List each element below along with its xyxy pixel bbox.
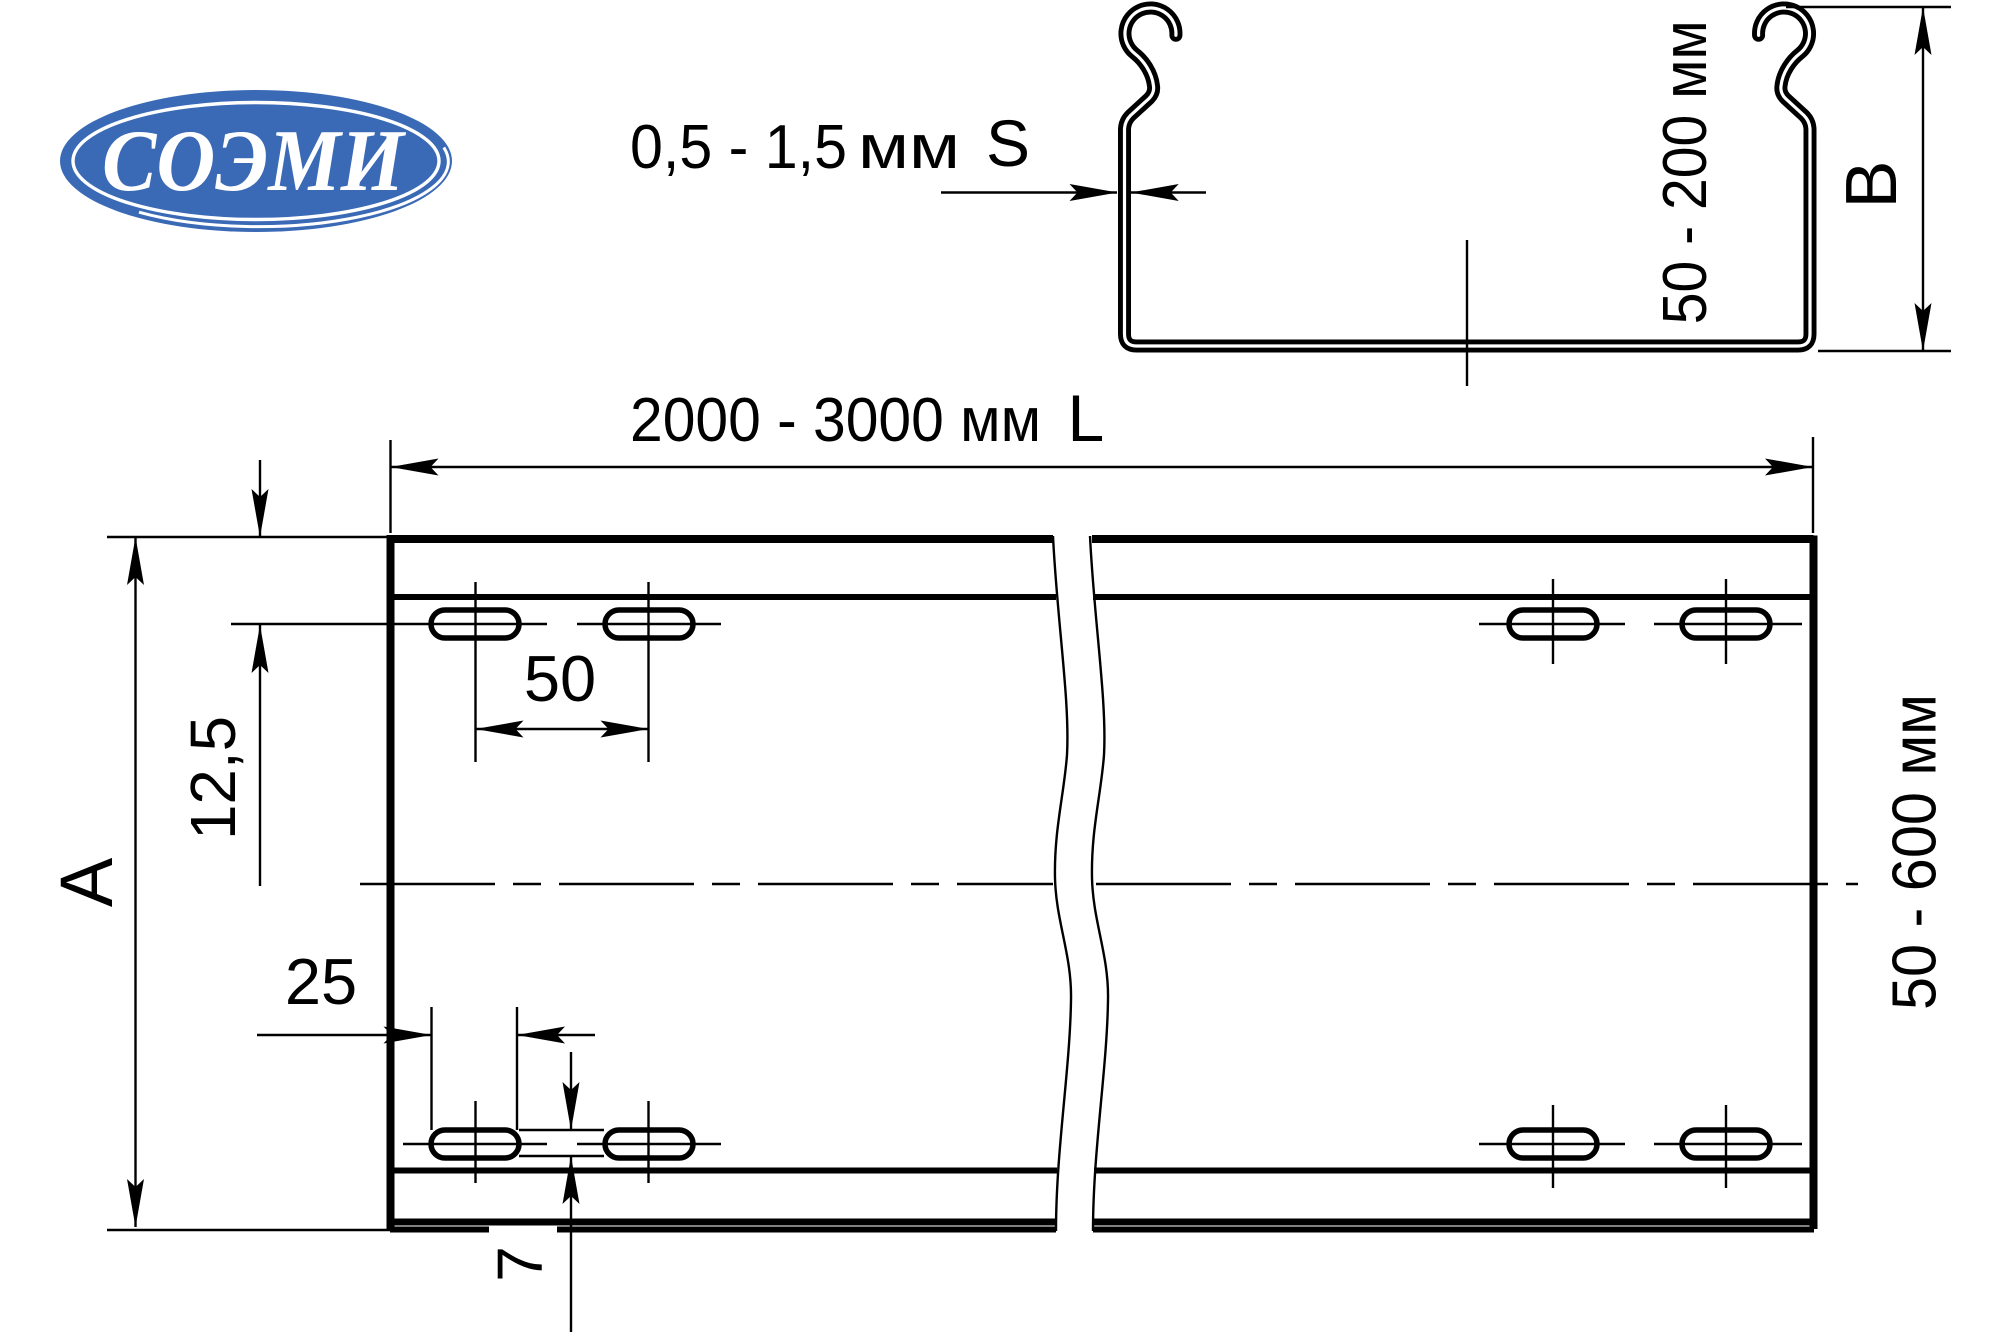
svg-text:L: L bbox=[1068, 381, 1105, 455]
svg-text:A: A bbox=[45, 857, 128, 907]
svg-text:0,5 - 1,5: 0,5 - 1,5 bbox=[630, 113, 847, 182]
svg-text:мм: мм bbox=[858, 113, 960, 182]
svg-text:25: 25 bbox=[285, 945, 357, 1018]
svg-text:50 - 600 мм: 50 - 600 мм bbox=[1881, 694, 1950, 1010]
svg-text:B: B bbox=[1832, 160, 1912, 208]
svg-text:12,5: 12,5 bbox=[177, 716, 249, 840]
svg-text:2000 - 3000 мм: 2000 - 3000 мм bbox=[630, 386, 1041, 455]
svg-text:7: 7 bbox=[484, 1246, 556, 1282]
svg-text:50: 50 bbox=[524, 642, 596, 715]
svg-text:СОЭМИ: СОЭМИ bbox=[102, 113, 406, 210]
svg-text:50 - 200 мм: 50 - 200 мм bbox=[1651, 20, 1720, 324]
svg-text:S: S bbox=[986, 106, 1030, 180]
